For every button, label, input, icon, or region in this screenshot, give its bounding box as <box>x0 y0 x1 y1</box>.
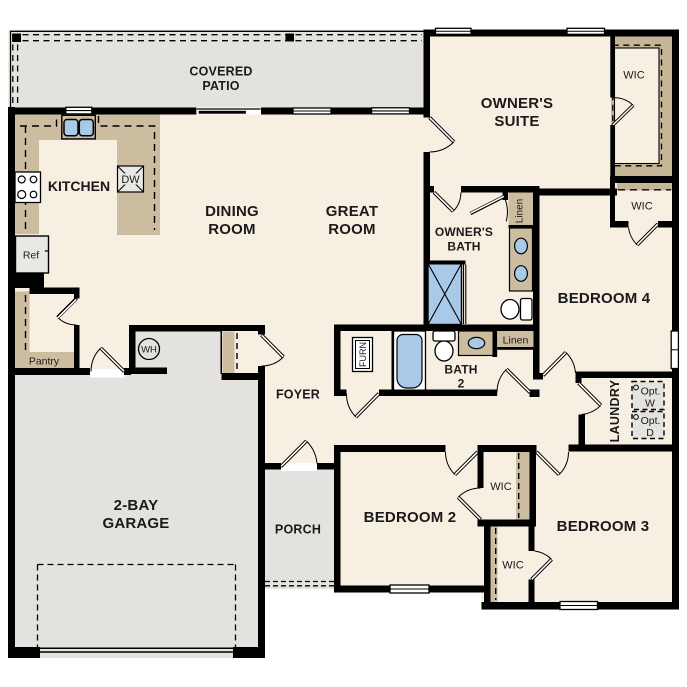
svg-text:WIC: WIC <box>502 560 523 572</box>
svg-text:Pantry: Pantry <box>29 356 60 368</box>
svg-text:WIC: WIC <box>631 201 652 213</box>
svg-text:2-BAY: 2-BAY <box>114 497 159 514</box>
svg-text:WH: WH <box>141 345 157 356</box>
svg-text:ROOM: ROOM <box>328 221 375 238</box>
svg-text:BEDROOM 4: BEDROOM 4 <box>558 290 651 307</box>
svg-text:W: W <box>645 398 655 410</box>
svg-text:Ref: Ref <box>23 250 39 262</box>
svg-text:BATH: BATH <box>447 240 480 254</box>
svg-text:OWNER'S: OWNER'S <box>435 225 493 239</box>
svg-text:BEDROOM 2: BEDROOM 2 <box>364 509 457 526</box>
svg-text:Opt.: Opt. <box>641 386 661 398</box>
svg-text:FURN: FURN <box>358 342 368 367</box>
svg-text:ROOM: ROOM <box>208 221 255 238</box>
svg-text:DINING: DINING <box>205 203 259 220</box>
svg-text:SUITE: SUITE <box>494 113 539 130</box>
svg-text:PATIO: PATIO <box>202 79 239 93</box>
svg-text:Linen: Linen <box>503 335 529 347</box>
svg-text:WIC: WIC <box>490 481 511 493</box>
svg-text:COVERED: COVERED <box>189 65 252 79</box>
svg-text:Linen: Linen <box>515 199 526 223</box>
svg-text:WIC: WIC <box>623 70 644 82</box>
svg-text:KITCHEN: KITCHEN <box>48 178 110 194</box>
svg-text:D: D <box>646 427 654 439</box>
svg-text:BEDROOM 3: BEDROOM 3 <box>557 518 650 535</box>
svg-text:DW: DW <box>121 174 140 186</box>
svg-text:2: 2 <box>458 377 465 391</box>
svg-text:OWNER'S: OWNER'S <box>481 95 553 112</box>
svg-text:FOYER: FOYER <box>276 388 320 402</box>
svg-text:PORCH: PORCH <box>275 523 321 537</box>
svg-text:GARAGE: GARAGE <box>102 515 169 532</box>
svg-text:GREAT: GREAT <box>326 203 378 220</box>
svg-text:LAUNDRY: LAUNDRY <box>608 379 622 442</box>
svg-text:Opt.: Opt. <box>641 415 661 427</box>
svg-text:BATH: BATH <box>444 363 477 377</box>
